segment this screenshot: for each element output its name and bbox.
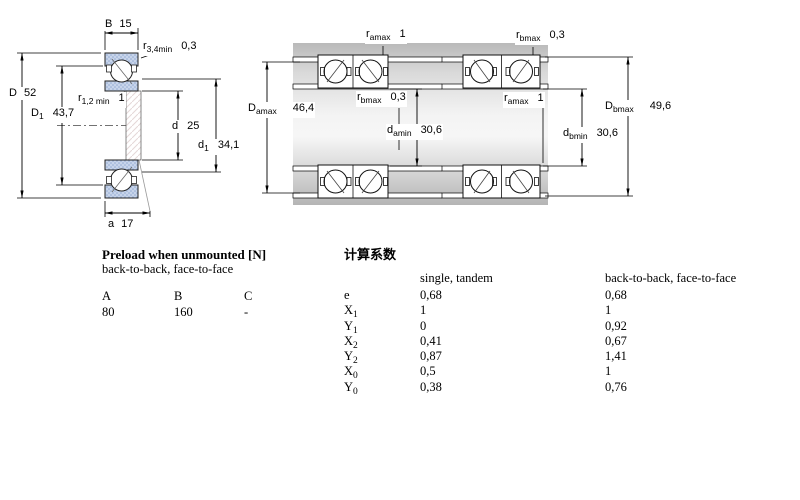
dim-label-B: B15 <box>104 18 133 31</box>
dim-symbol: B <box>105 18 112 30</box>
preload-subtitle: back-to-back, face-to-face <box>102 262 332 277</box>
dim-symbol: D <box>31 107 39 119</box>
dim-value: 30,6 <box>597 127 618 139</box>
preload-value: 80 <box>102 305 174 321</box>
factors-row: X1 1 1 <box>344 303 774 318</box>
dim-value: 52 <box>24 87 36 99</box>
dim-value: 17 <box>121 218 133 230</box>
dim-label-D1: D143,7 <box>30 107 75 123</box>
preload-table: A B C 80 160 - <box>102 289 332 321</box>
dim-subscript: amax <box>256 106 277 116</box>
dim-subscript: amax <box>508 96 529 106</box>
preload-section: Preload when unmounted [N] back-to-back,… <box>102 247 332 321</box>
dim-symbol: a <box>108 218 114 230</box>
dim-value: 1 <box>537 92 543 104</box>
factors-table: single, tandem back-to-back, face-to-fac… <box>344 271 774 395</box>
dim-label-Dbmax: Dbmax49,6 <box>604 100 672 116</box>
preload-value-row: 80 160 - <box>102 305 332 321</box>
preload-col-header: B <box>174 289 244 305</box>
dim-label-d1: d134,1 <box>197 139 240 155</box>
preload-title: Preload when unmounted [N] <box>102 247 332 262</box>
factors-row: Y1 0 0,92 <box>344 319 774 334</box>
factors-header-row: single, tandem back-to-back, face-to-fac… <box>344 271 774 288</box>
dim-subscript: 1 <box>39 111 44 121</box>
preload-value: 160 <box>174 305 244 321</box>
preload-value: - <box>244 305 332 321</box>
dim-subscript: bmax <box>613 104 634 114</box>
dim-value: 34,1 <box>218 139 239 151</box>
factor-value-paired: 1 <box>605 364 774 379</box>
dim-label-rbmax-a: rbmax0,3 <box>356 91 407 107</box>
dim-subscript: bmax <box>520 33 541 43</box>
factor-value-single: 0,38 <box>420 380 605 395</box>
preload-col-header: C <box>244 289 332 305</box>
dim-value: 15 <box>119 18 131 30</box>
dim-label-a: a17 <box>107 218 134 231</box>
factors-row: e 0,68 0,68 <box>344 288 774 303</box>
dim-label-d: d25 <box>171 120 200 133</box>
dim-value: 30,6 <box>421 124 442 136</box>
dim-value: 1 <box>399 28 405 40</box>
dim-value: 0,3 <box>181 40 196 52</box>
dim-symbol: d <box>172 120 178 132</box>
factors-row: X2 0,41 0,67 <box>344 334 774 349</box>
dim-label-ramax-a: ramax1 <box>365 28 407 44</box>
duplex-pair-diagram-b <box>442 43 633 205</box>
dim-value: 1 <box>119 92 125 104</box>
factors-col-header-back-to-back: back-to-back, face-to-face <box>605 271 774 286</box>
dim-label-r12min: r1,2 min1 <box>77 92 126 108</box>
factors-row: X0 0,5 1 <box>344 364 774 379</box>
factor-value-single: 0,87 <box>420 349 605 364</box>
dim-subscript: amax <box>370 32 391 42</box>
factor-symbol: Y0 <box>344 380 420 400</box>
factor-value-paired: 0,76 <box>605 380 774 395</box>
factors-row: Y0 0,38 0,76 <box>344 380 774 395</box>
calculation-factors-section: 计算系数 single, tandem back-to-back, face-t… <box>344 247 774 395</box>
dim-value: 49,6 <box>650 100 671 112</box>
dim-subscript: amin <box>393 128 411 138</box>
factor-value-single: 0 <box>420 319 605 334</box>
factor-value-single: 1 <box>420 303 605 318</box>
factors-row: Y2 0,87 1,41 <box>344 349 774 364</box>
dim-value: 0,3 <box>390 91 405 103</box>
dim-subscript: 3,4min <box>147 44 173 54</box>
dim-value: 0,3 <box>549 29 564 41</box>
factor-value-paired: 0,67 <box>605 334 774 349</box>
dim-label-ramax-b: ramax1 <box>503 92 545 108</box>
preload-header-row: A B C <box>102 289 332 305</box>
dim-symbol: D <box>605 100 613 112</box>
dim-label-D: D52 <box>8 87 37 100</box>
dim-label-r34min: r3,4min0,3 <box>142 40 197 56</box>
factor-value-paired: 0,92 <box>605 319 774 334</box>
factor-value-paired: 0,68 <box>605 288 774 303</box>
dim-value: 46,4 <box>293 102 314 114</box>
dim-subscript: 1 <box>204 143 209 153</box>
factor-value-single: 0,5 <box>420 364 605 379</box>
datasheet-page: B15 r3,4min0,3 D52 D143,7 r1,2 min1 d25 … <box>0 0 800 500</box>
dim-symbol: D <box>9 87 17 99</box>
dim-value: 43,7 <box>53 107 74 119</box>
dim-label-dbmin: dbmin30,6 <box>562 127 619 143</box>
dim-value: 25 <box>187 120 199 132</box>
dim-label-rbmax-b: rbmax0,3 <box>515 29 566 45</box>
dim-subscript: 1,2 min <box>82 96 110 106</box>
dim-subscript: bmax <box>361 95 382 105</box>
factor-value-single: 0,68 <box>420 288 605 303</box>
dim-subscript: bmin <box>569 131 587 141</box>
dim-label-Damax: Damax46,4 <box>247 102 315 118</box>
preload-col-header: A <box>102 289 174 305</box>
factors-col-header-single-tandem: single, tandem <box>420 271 605 286</box>
factor-value-single: 0,41 <box>420 334 605 349</box>
dim-label-damin: damin30,6 <box>386 124 443 140</box>
factor-value-paired: 1,41 <box>605 349 774 364</box>
dim-symbol: D <box>248 102 256 114</box>
factor-value-paired: 1 <box>605 303 774 318</box>
factors-title: 计算系数 <box>344 247 774 262</box>
